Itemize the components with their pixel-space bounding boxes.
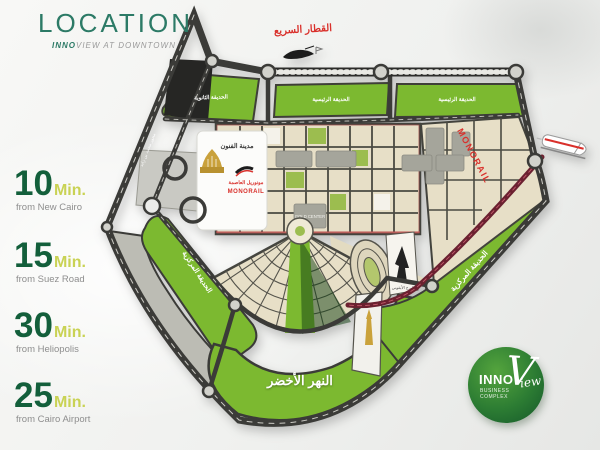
travel-time-origin: from Suez Road [16,274,134,285]
travel-time-origin: from Cairo Airport [16,414,134,425]
travel-time-origin: from Heliopolis [16,344,134,355]
brand-subtitle-rest: VIEW AT DOWNTOWN [76,41,176,50]
monorail-train-icon [535,132,589,158]
logo-business-complex-text: BUSINESS COMPLEX [480,388,514,401]
park-block-3-label: الحديقة الرئيسية [438,97,475,103]
brand-subtitle: INNOVIEW AT DOWNTOWN [52,41,193,50]
park-block-2-label: الحديقة الرئيسية [312,97,349,103]
travel-time-unit: Min. [54,254,86,272]
travel-time-origin: from New Cairo [16,202,134,213]
header: LOCATION INNOVIEW AT DOWNTOWN [38,8,193,50]
iconic-tower-parcel: البرج الأيقوني [386,232,418,295]
green-river-label: النهر الأخضر [267,373,333,389]
location-page: LOCATION INNOVIEW AT DOWNTOWN 10Min. fro… [0,0,600,450]
train-icon [283,46,322,59]
travel-time-new-cairo: 10Min. from New Cairo [14,166,134,213]
travel-time-value: 15 [14,238,53,273]
travel-time-value: 30 [14,308,53,343]
page-title: LOCATION [38,8,193,39]
monorail-station-ar-label: مونوريل العاصمة [229,180,264,186]
travel-time-heliopolis: 30Min. from Heliopolis [14,308,134,355]
travel-time-value: 25 [14,378,53,413]
travel-time-cairo-airport: 25Min. from Cairo Airport [14,378,134,425]
logo-script-rest: iew [519,374,542,391]
monorail-station-en-label: MONORAIL [228,189,265,195]
city-of-arts-label: مدينة الفنون [220,142,253,150]
travel-time-suez-road: 15Min. from Suez Road [14,238,134,285]
travel-time-unit: Min. [54,394,86,412]
travel-time-unit: Min. [54,324,86,342]
travel-time-unit: Min. [54,182,86,200]
brand-logo: INNO V iew BUSINESS COMPLEX [468,347,544,423]
travel-time-value: 10 [14,166,53,201]
park-block-1-label: الحديقة الثانوية [194,94,228,101]
brand-subtitle-bold: INNO [52,41,76,50]
